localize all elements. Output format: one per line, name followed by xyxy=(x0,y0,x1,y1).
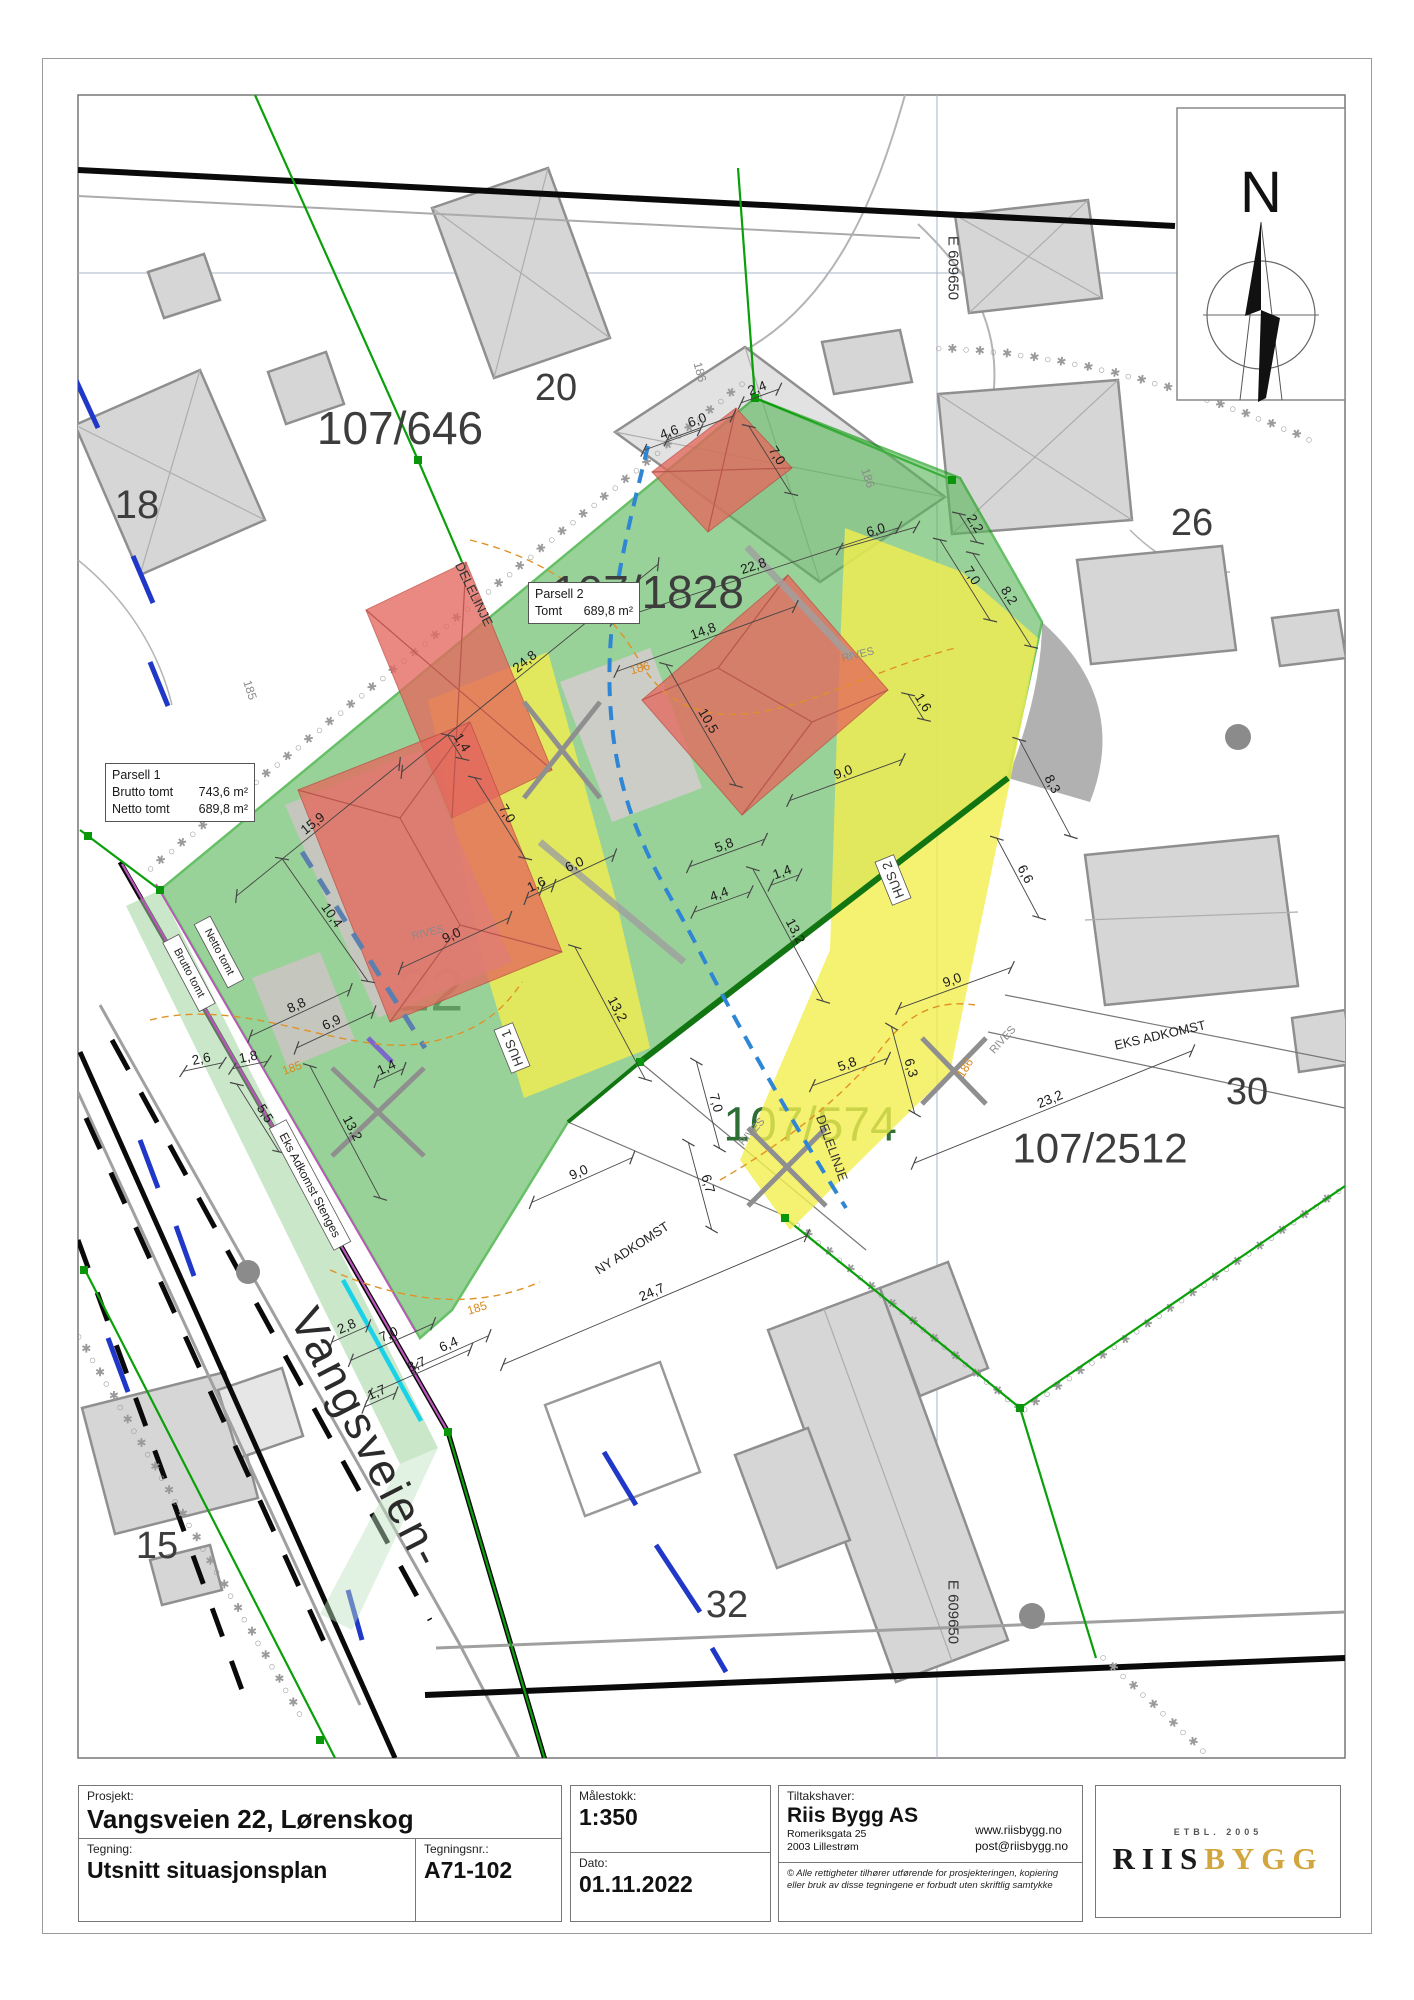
titleblock-scale-date-box: Målestokk: 1:350 Dato: 01.11.2022 xyxy=(570,1785,771,1922)
north-arrow-box: N xyxy=(1177,108,1345,402)
logo-established-text: ETBL. 2005 xyxy=(1174,1827,1263,1837)
svg-text:32: 32 xyxy=(706,1584,748,1626)
svg-text:30: 30 xyxy=(1226,1071,1268,1113)
parsell-2-infobox: Parsell 2 Tomt689,8 m² xyxy=(528,582,640,624)
drawing-no: A71-102 xyxy=(416,1856,561,1884)
date-value: 01.11.2022 xyxy=(571,1870,770,1898)
date-label: Dato: xyxy=(571,1853,770,1870)
drawing-sheet: ○✱○✱○✱○✱○✱○✱○✱○✱○✱○✱○✱○✱○✱○✱○✱○✱○✱○✱○✱○✱… xyxy=(0,0,1414,2000)
site-plan-map: ○✱○✱○✱○✱○✱○✱○✱○✱○✱○✱○✱○✱○✱○✱○✱○✱○✱○✱○✱○✱… xyxy=(0,0,1414,2000)
map-label: 107/2512 xyxy=(1012,1125,1187,1172)
project-label: Prosjekt: xyxy=(79,1786,561,1803)
map-label: E 609650 xyxy=(945,1580,962,1644)
logo-bygg-text: BYGG xyxy=(1204,1841,1323,1876)
svg-text:E 609650: E 609650 xyxy=(945,1580,962,1644)
svg-text:20: 20 xyxy=(535,367,577,409)
svg-text:107/646: 107/646 xyxy=(317,402,483,454)
drawing-label: Tegning: xyxy=(79,1839,415,1856)
logo-riis-text: RIIS xyxy=(1112,1841,1204,1876)
infobox-row: Brutto tomt743,6 m² xyxy=(112,784,248,801)
drawing-title: Utsnitt situasjonsplan xyxy=(79,1856,415,1884)
map-label: 107/646 xyxy=(317,402,483,454)
map-label: E 609650 xyxy=(945,236,962,300)
svg-text:26: 26 xyxy=(1171,502,1213,544)
project-title: Vangsveien 22, Lørenskog xyxy=(79,1803,561,1835)
svg-text:107/2512: 107/2512 xyxy=(1012,1125,1187,1172)
titleblock-project-box: Prosjekt: Vangsveien 22, Lørenskog Tegni… xyxy=(78,1785,562,1922)
map-label: 15 xyxy=(136,1525,178,1567)
svg-text:E 609650: E 609650 xyxy=(945,236,962,300)
client-web[interactable]: www.riisbygg.no xyxy=(975,1822,1068,1838)
client-label: Tiltakshaver: xyxy=(779,1786,1082,1803)
map-label: 32 xyxy=(706,1584,748,1626)
north-label: N xyxy=(1240,160,1282,225)
scale-label: Målestokk: xyxy=(571,1786,770,1803)
titleblock-client-box: Tiltakshaver: Riis Bygg AS Romeriksgata … xyxy=(778,1785,1083,1922)
map-label: 20 xyxy=(535,367,577,409)
map-label: 30 xyxy=(1226,1071,1268,1113)
client-email[interactable]: post@riisbygg.no xyxy=(975,1838,1068,1854)
parsell-1-infobox: Parsell 1 Brutto tomt743,6 m²Netto tomt6… xyxy=(105,763,255,822)
copyright-line-1: © Alle rettigheter tilhører utførende fo… xyxy=(787,1868,1074,1880)
svg-text:15: 15 xyxy=(136,1525,178,1567)
parsell-2-title: Parsell 2 xyxy=(535,586,633,603)
company-logo: ETBL. 2005 RIISBYGG xyxy=(1095,1785,1341,1918)
map-label: 18 xyxy=(115,483,160,527)
svg-text:18: 18 xyxy=(115,483,160,527)
infobox-row: Netto tomt689,8 m² xyxy=(112,801,248,818)
map-label: 26 xyxy=(1171,502,1213,544)
drawing-no-label: Tegningsnr.: xyxy=(416,1839,561,1856)
copyright-line-2: eller bruk av disse tegningene er forbud… xyxy=(787,1880,1074,1892)
parsell-1-title: Parsell 1 xyxy=(112,767,248,784)
scale-value: 1:350 xyxy=(571,1803,770,1831)
infobox-row: Tomt689,8 m² xyxy=(535,603,633,620)
